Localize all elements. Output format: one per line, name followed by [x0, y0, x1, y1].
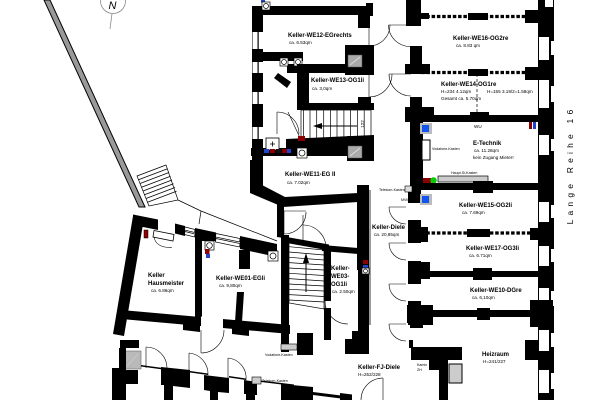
svg-text:ca. 6.53qm: ca. 6.53qm: [289, 40, 312, 45]
svg-text:H=241/227: H=241/227: [483, 359, 506, 364]
svg-text:Kamin: Kamin: [417, 363, 427, 367]
svg-text:H=155 3.19/2=1.58qm: H=155 3.19/2=1.58qm: [487, 89, 533, 94]
svg-text:Keller-WE12-EGrechts: Keller-WE12-EGrechts: [288, 33, 352, 39]
svg-text:WE03-: WE03-: [331, 274, 349, 280]
svg-text:kein Zugang Mieter!: kein Zugang Mieter!: [473, 155, 514, 160]
svg-text:ca. 6.71qm: ca. 6.71qm: [469, 253, 492, 258]
svg-text:Keller-WE01-EGli: Keller-WE01-EGli: [216, 276, 265, 282]
svg-text:ca. 8.83 qm: ca. 8.83 qm: [456, 43, 480, 48]
svg-text:Keller-WE11-EG II: Keller-WE11-EG II: [285, 172, 336, 178]
svg-text:ca. 3,0qm: ca. 3,0qm: [312, 86, 332, 91]
svg-text:OG1li: OG1li: [331, 282, 347, 288]
svg-text:Keller-WE15-OG2li: Keller-WE15-OG2li: [459, 203, 512, 209]
svg-text:WU: WU: [474, 124, 482, 129]
svg-text:Telekom-Kasten: Telekom-Kasten: [262, 379, 288, 383]
svg-text:122: 122: [360, 120, 365, 128]
svg-text:Telekom-Kasten: Telekom-Kasten: [379, 188, 405, 192]
svg-text:Keller-Diele: Keller-Diele: [372, 225, 406, 231]
svg-text:Heizraum: Heizraum: [482, 352, 509, 358]
svg-text:Haupt-Si-Kasten: Haupt-Si-Kasten: [451, 171, 477, 175]
svg-text:Vodafone-Kasten: Vodafone-Kasten: [265, 353, 293, 357]
svg-text:ZH: ZH: [417, 368, 422, 372]
svg-text:H=252/228: H=252/228: [358, 372, 381, 377]
svg-text:Keller-WE16-OG2re: Keller-WE16-OG2re: [453, 36, 509, 42]
svg-text:Gesamt ca. 5.70qm: Gesamt ca. 5.70qm: [441, 96, 481, 101]
svg-text:Lange Reihe 16: Lange Reihe 16: [565, 106, 575, 225]
svg-text:Keller-WE13-OG1li: Keller-WE13-OG1li: [311, 78, 364, 84]
svg-text:ca. 11.28qm: ca. 11.28qm: [474, 148, 499, 153]
svg-text:ca. 7.02qm: ca. 7.02qm: [287, 180, 310, 185]
svg-text:ca. 9,80qm: ca. 9,80qm: [219, 283, 242, 288]
svg-text:Keller-WE14-OG1re: Keller-WE14-OG1re: [441, 82, 497, 88]
svg-text:ca. 20,85qm: ca. 20,85qm: [374, 232, 399, 237]
svg-text:Keller-WE17-OG3li: Keller-WE17-OG3li: [466, 246, 519, 252]
svg-text:Keller: Keller: [148, 273, 165, 279]
svg-text:N: N: [109, 0, 117, 12]
svg-text:Keller-WE10-DGre: Keller-WE10-DGre: [470, 288, 522, 294]
svg-text:ca. 6,10qm: ca. 6,10qm: [472, 295, 495, 300]
svg-text:Keller-: Keller-: [331, 266, 350, 272]
svg-text:Hausmeister: Hausmeister: [148, 281, 185, 287]
svg-text:MVli: MVli: [401, 198, 408, 202]
svg-text:H=234 4.12qm: H=234 4.12qm: [441, 89, 471, 94]
svg-text:ca. 6.86qm: ca. 6.86qm: [151, 288, 174, 293]
svg-text:E-Technik: E-Technik: [473, 141, 502, 147]
svg-text:ca. 7.69qm: ca. 7.69qm: [462, 210, 485, 215]
svg-text:Vodafone-Kasten: Vodafone-Kasten: [432, 147, 460, 151]
svg-text:ca. 2.50qm: ca. 2.50qm: [332, 289, 355, 294]
svg-text:Keller-FJ-Diele: Keller-FJ-Diele: [358, 365, 401, 371]
